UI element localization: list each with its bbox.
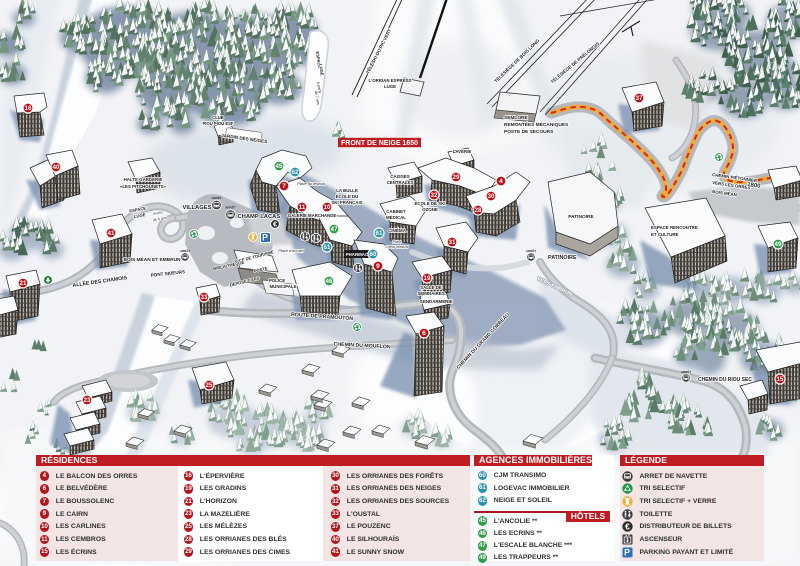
svg-text:19: 19: [424, 275, 431, 282]
svg-text:37: 37: [636, 95, 643, 102]
svg-text:Place d'accueil: Place d'accueil: [278, 249, 303, 253]
svg-text:47: 47: [331, 226, 338, 233]
svg-text:ESPACE RENCONTRE: ESPACE RENCONTRE: [651, 225, 698, 230]
svg-text:CABINET: CABINET: [386, 209, 406, 214]
svg-text:45: 45: [276, 163, 283, 170]
svg-text:40: 40: [53, 164, 60, 171]
svg-text:MUNICIPALE: MUNICIPALE: [270, 284, 297, 289]
svg-text:32: 32: [431, 192, 438, 199]
svg-text:25: 25: [206, 382, 213, 389]
svg-text:L'ORRIAN EXPRESS: L'ORRIAN EXPRESS: [368, 78, 411, 83]
svg-text:POLICE: POLICE: [269, 278, 285, 283]
svg-text:16: 16: [25, 105, 32, 112]
svg-text:62: 62: [292, 169, 299, 176]
svg-text:€: €: [273, 220, 277, 229]
svg-text:61: 61: [324, 244, 331, 251]
svg-text:ARRÊT: ARRÊT: [225, 205, 236, 210]
svg-text:SALLE DE: SALLE DE: [420, 285, 442, 290]
svg-text:Place: Place: [393, 240, 402, 244]
svg-text:ÉCOLE DU: ÉCOLE DU: [336, 194, 359, 199]
svg-text:11: 11: [299, 204, 306, 211]
svg-text:LAVERIE: LAVERIE: [453, 149, 472, 154]
svg-text:FRONT DE NEIGE 1650: FRONT DE NEIGE 1650: [341, 140, 418, 147]
svg-text:15: 15: [777, 376, 784, 383]
svg-text:41: 41: [108, 230, 115, 237]
svg-text:CHEMIN DU RIOU SEC: CHEMIN DU RIOU SEC: [698, 377, 752, 383]
svg-text:SKI FRANÇAIS: SKI FRANÇAIS: [331, 200, 362, 205]
svg-text:LA BULLE: LA BULLE: [336, 188, 358, 193]
svg-text:ET CULTURE: ET CULTURE: [651, 232, 679, 237]
svg-text:49: 49: [775, 241, 782, 248]
svg-text:GENDARMERIE: GENDARMERIE: [420, 299, 453, 304]
svg-text:LUGE: LUGE: [384, 84, 396, 89]
svg-text:60: 60: [370, 251, 377, 258]
svg-text:9: 9: [376, 263, 380, 270]
svg-text:4: 4: [499, 178, 503, 185]
svg-text:ARRÊT: ARRÊT: [526, 248, 537, 253]
svg-text:29: 29: [453, 174, 460, 181]
svg-text:MÉDICAL: MÉDICAL: [386, 215, 406, 220]
svg-text:POSTE DE SECOURS: POSTE DE SECOURS: [504, 129, 554, 135]
svg-text:ARRÊT: ARRÊT: [211, 195, 222, 200]
svg-text:.: .: [268, 238, 269, 243]
svg-text:ARRÊT: ARRÊT: [681, 369, 692, 374]
svg-text:33: 33: [201, 294, 208, 301]
svg-text:SEMLORE: SEMLORE: [504, 115, 529, 121]
svg-text:PATINOIRE: PATINOIRE: [568, 214, 594, 220]
svg-text:CINÉMA: CINÉMA: [388, 226, 407, 233]
svg-text:31: 31: [449, 239, 456, 246]
svg-text:61: 61: [376, 230, 383, 237]
svg-text:23: 23: [84, 397, 91, 404]
svg-text:«LES PITCHOUNETS»: «LES PITCHOUNETS»: [120, 184, 167, 189]
svg-text:CAISSES: CAISSES: [390, 174, 409, 179]
svg-text:28: 28: [475, 207, 482, 214]
svg-text:OZONE: OZONE: [422, 207, 438, 212]
svg-text:CLUB: CLUB: [212, 115, 224, 120]
svg-text:Coeur médical: Coeur médical: [385, 245, 408, 249]
svg-text:21: 21: [20, 280, 27, 287]
svg-text:ÉCOLE DE SKI: ÉCOLE DE SKI: [415, 201, 446, 206]
svg-text:PIOU PIOU ESF: PIOU PIOU ESF: [203, 121, 234, 126]
svg-text:30: 30: [488, 193, 495, 200]
svg-text:HALTE GARDERIE: HALTE GARDERIE: [124, 177, 163, 182]
svg-text:ARRÊT: ARRÊT: [180, 248, 191, 253]
svg-text:VILLAGES: VILLAGES: [183, 205, 212, 211]
svg-text:10: 10: [324, 204, 331, 211]
svg-text:SÉMINAIRES: SÉMINAIRES: [417, 291, 444, 296]
svg-text:CENTRALES: CENTRALES: [387, 180, 414, 185]
svg-text:GALERIE MARCHANDE: GALERIE MARCHANDE: [288, 213, 337, 218]
svg-text:6: 6: [422, 330, 426, 337]
svg-text:PATINOIRE: PATINOIRE: [548, 255, 577, 261]
svg-text:46: 46: [326, 278, 333, 285]
svg-text:7: 7: [282, 183, 286, 190]
svg-text:Place du festival: Place du festival: [297, 182, 325, 186]
